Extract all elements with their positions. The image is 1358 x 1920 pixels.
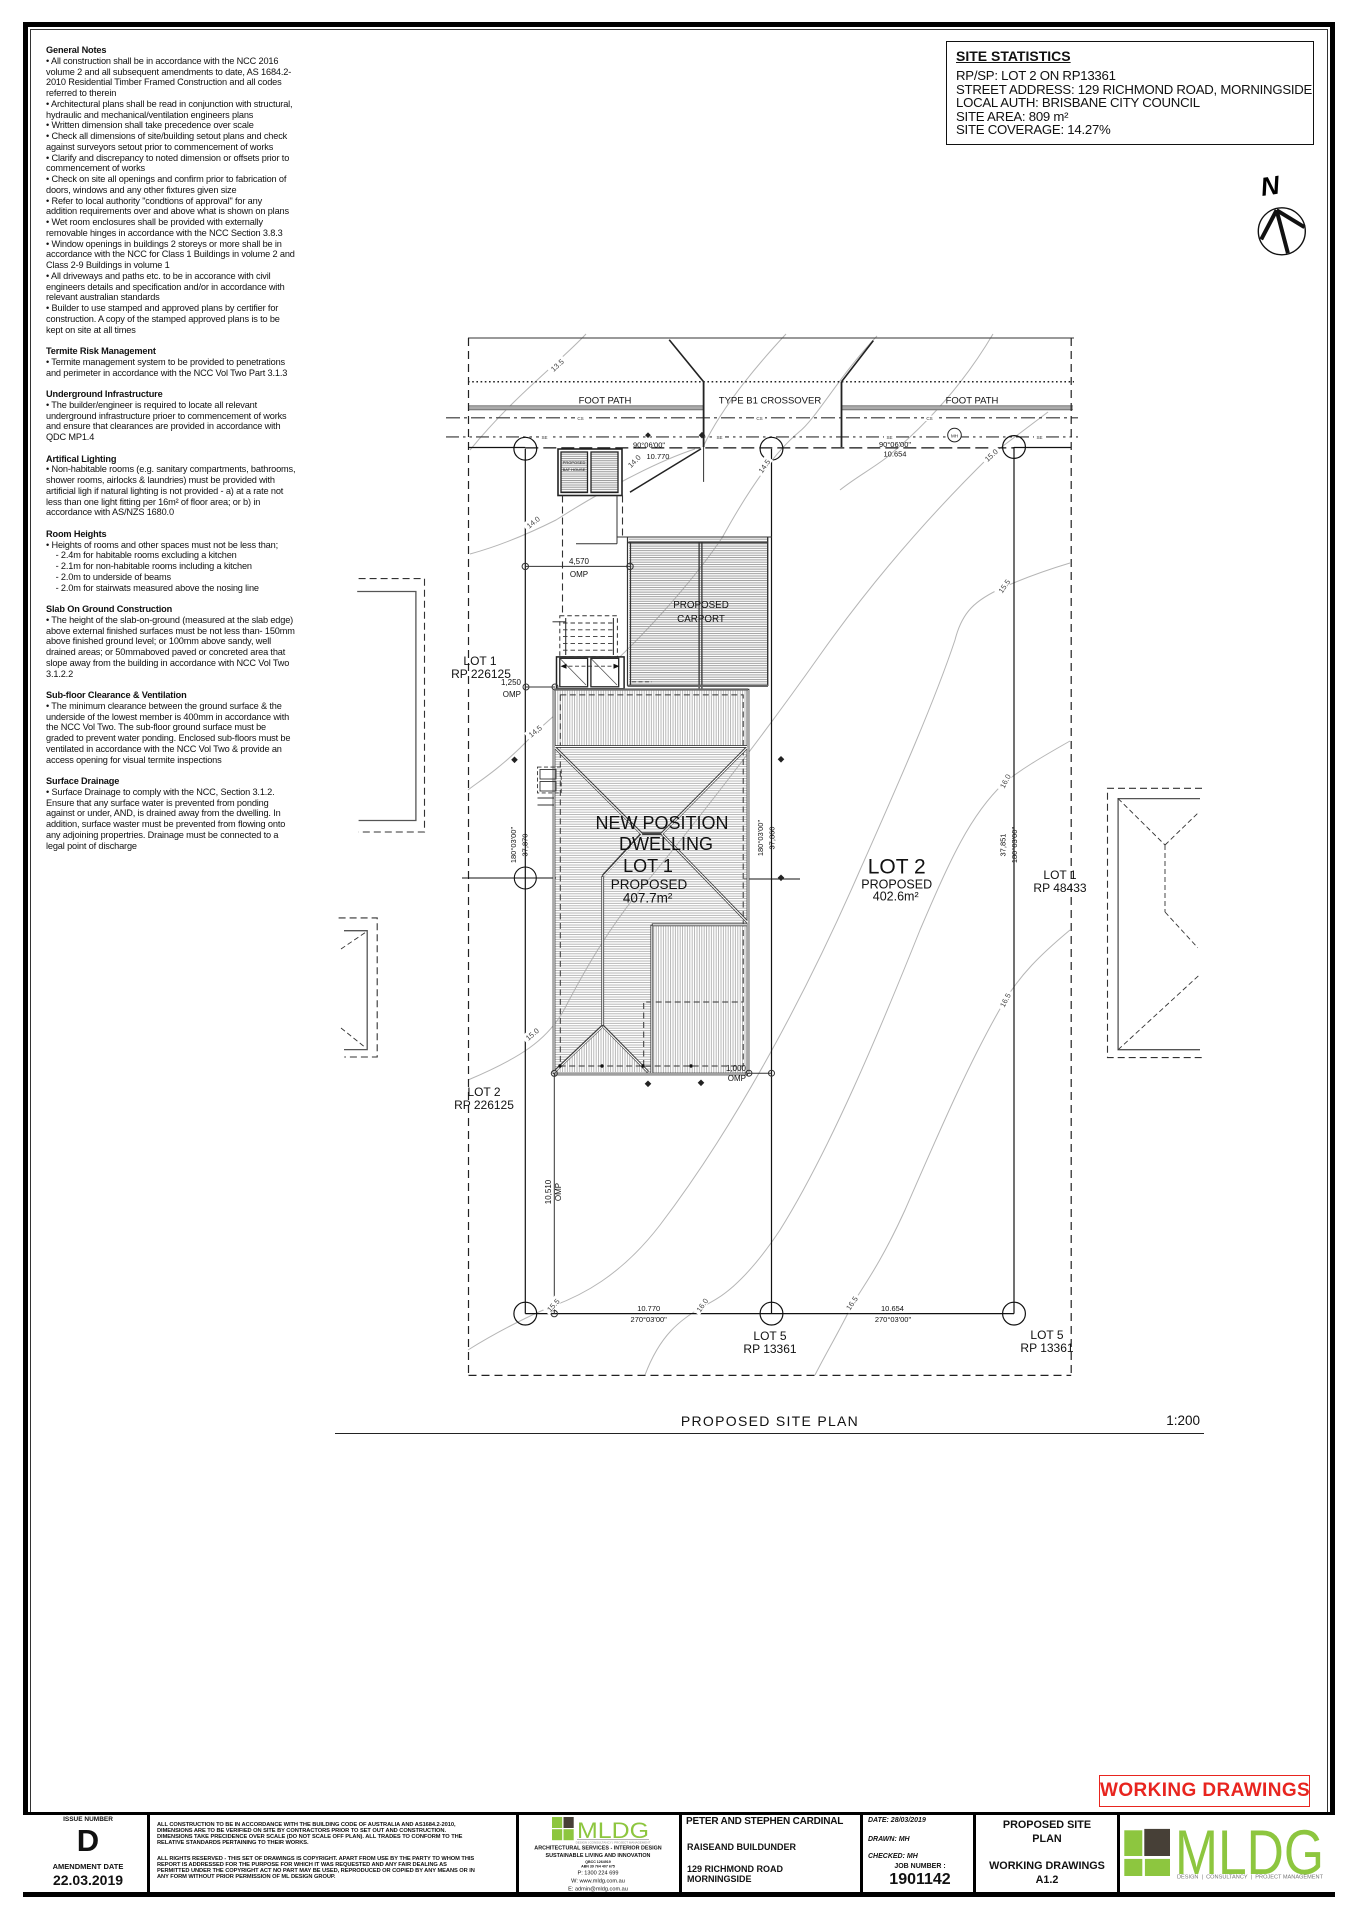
svg-text:N: N [1259, 169, 1283, 201]
svg-text:DWELLING: DWELLING [619, 834, 713, 854]
svg-text:DESIGN | CONSULTANCY | PROJECT: DESIGN | CONSULTANCY | PROJECT MANAGEMEN… [576, 1841, 651, 1845]
svg-text:270°03'00": 270°03'00" [631, 1315, 668, 1324]
svg-text:LOT 5: LOT 5 [753, 1329, 786, 1343]
svg-text:TYPE B1 CROSSOVER: TYPE B1 CROSSOVER [719, 396, 822, 407]
svg-text:LOT 2: LOT 2 [467, 1085, 500, 1099]
svg-text:OMP: OMP [554, 1183, 563, 1201]
svg-text:RP 48433: RP 48433 [1033, 881, 1086, 895]
svg-text:CS: CS [756, 416, 762, 421]
svg-text:OMP: OMP [503, 690, 521, 699]
svg-text:37,870: 37,870 [521, 834, 530, 857]
svg-text:DESIGN | CONSULTANCY | PRO: DESIGN | CONSULTANCY | PROJECT MANAGEMEN… [1177, 1875, 1324, 1881]
svg-text:4,570: 4,570 [569, 557, 590, 566]
svg-text:CARPORT: CARPORT [677, 614, 725, 625]
svg-text:FOOT PATH: FOOT PATH [946, 396, 999, 407]
svg-text:ARCHITECTURAL SERVICES - INTER: ARCHITECTURAL SERVICES - INTERIOR DESIGN [534, 1846, 661, 1852]
svg-text:RP 13361: RP 13361 [743, 1342, 796, 1356]
svg-text:SE: SE [716, 435, 722, 440]
svg-text:RP 226125: RP 226125 [454, 1098, 514, 1112]
svg-text:LOT 1: LOT 1 [463, 654, 496, 668]
svg-text:OMP: OMP [728, 1074, 746, 1083]
svg-text:BAT HOUSE: BAT HOUSE [563, 467, 586, 472]
svg-text:10.770: 10.770 [637, 1304, 660, 1313]
svg-text:E: admin@mldg.com.au: E: admin@mldg.com.au [568, 1887, 628, 1893]
svg-text:180°03'00": 180°03'00" [756, 820, 765, 857]
svg-text:LOT 2: LOT 2 [868, 856, 926, 879]
svg-text:LOT 1: LOT 1 [623, 856, 673, 876]
svg-text:QBCC 1264919: QBCC 1264919 [585, 1860, 611, 1864]
svg-text:180°03'00": 180°03'00" [509, 827, 518, 864]
svg-text:PROPOSED: PROPOSED [673, 600, 729, 611]
svg-text:1,000: 1,000 [726, 1064, 747, 1073]
svg-text:MH: MH [951, 433, 958, 438]
svg-text:LOT 1: LOT 1 [1043, 868, 1076, 882]
svg-text:10,510: 10,510 [544, 1179, 553, 1204]
svg-text:ABN 39 764 407 675: ABN 39 764 407 675 [581, 1865, 615, 1869]
svg-text:CS: CS [577, 416, 583, 421]
svg-text:PROPOSED: PROPOSED [563, 460, 586, 465]
svg-text:180°03'00": 180°03'00" [1010, 827, 1019, 864]
svg-text:RP 13361: RP 13361 [1020, 1341, 1073, 1355]
svg-text:CS: CS [926, 416, 932, 421]
svg-text:SE: SE [1036, 435, 1042, 440]
svg-text:P: 1300 224 699: P: 1300 224 699 [577, 1871, 618, 1877]
svg-text:OMP: OMP [570, 570, 588, 579]
svg-text:270°03'00": 270°03'00" [875, 1315, 912, 1324]
svg-text:10.654: 10.654 [884, 450, 907, 459]
svg-text:LOT 5: LOT 5 [1030, 1328, 1063, 1342]
svg-text:FOOT PATH: FOOT PATH [579, 396, 632, 407]
svg-text:W: www.mldg.com.au: W: www.mldg.com.au [571, 1879, 625, 1885]
svg-text:10.654: 10.654 [881, 1304, 904, 1313]
svg-text:37,860: 37,860 [768, 827, 777, 850]
svg-text:10.770: 10.770 [647, 452, 670, 461]
svg-text:1,250: 1,250 [501, 678, 522, 687]
svg-text:SUSTAINABLE LIVING AND INNOVAT: SUSTAINABLE LIVING AND INNOVATION [546, 1853, 651, 1859]
svg-text:NEW POSITION: NEW POSITION [595, 813, 728, 833]
svg-text:37,851: 37,851 [999, 834, 1008, 857]
svg-text:SE: SE [541, 435, 547, 440]
svg-text:407.7m²: 407.7m² [623, 891, 673, 906]
svg-text:402.6m²: 402.6m² [873, 890, 919, 904]
